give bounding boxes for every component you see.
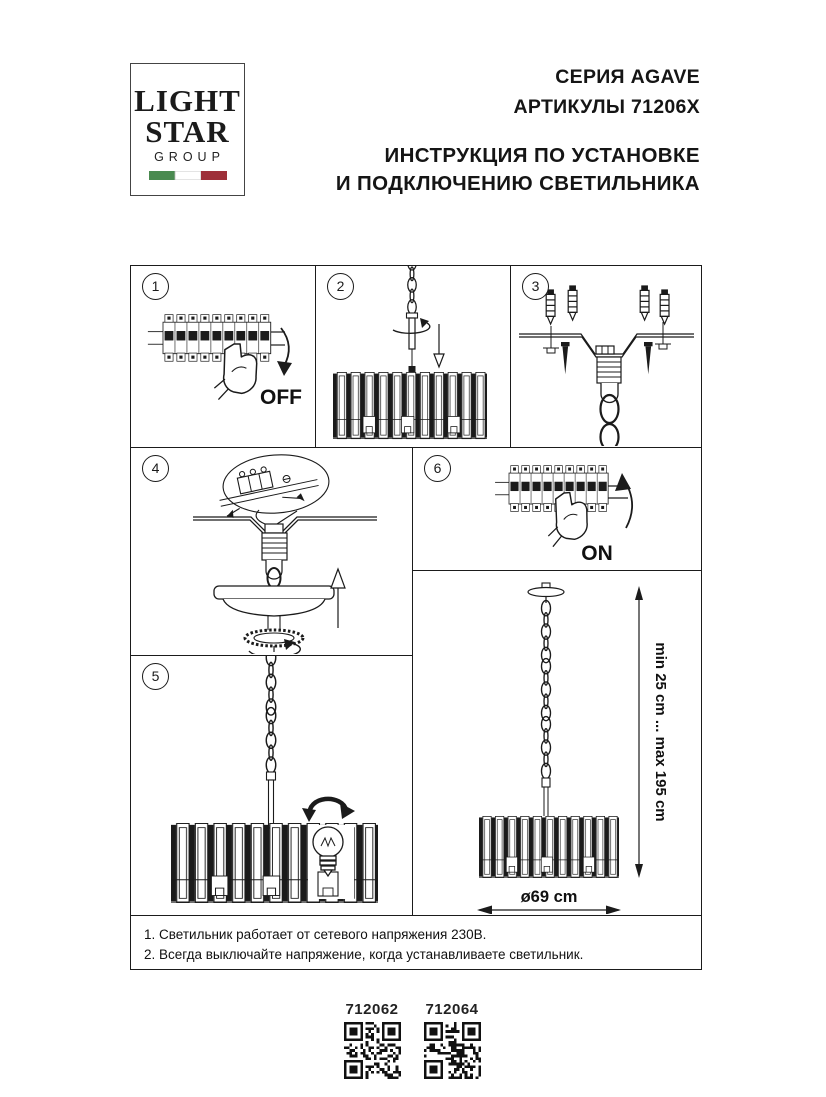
step-panel-3: 3 <box>511 266 701 448</box>
qr-code-712064 <box>424 1022 481 1079</box>
step-panel-2: 2 <box>316 266 511 448</box>
chain-icon <box>266 656 276 715</box>
chain-icon <box>542 659 551 721</box>
instruction-sheet: LIGHT STAR GROUP СЕРИЯ AGAVE АРТИКУЛЫ 71… <box>0 0 826 1097</box>
crystal-shade-icon <box>479 816 619 878</box>
article-code-712064: 712064 <box>423 1001 481 1018</box>
screw-icon <box>644 342 653 374</box>
page-title: ИНСТРУКЦИЯ ПО УСТАНОВКЕ И ПОДКЛЮЧЕНИЮ СВ… <box>336 142 700 198</box>
wall-anchor-icon <box>640 286 649 320</box>
instruction-grid: 1 OFF 2 <box>130 265 702 970</box>
chain-link-icon <box>601 424 619 446</box>
step-number-badge: 1 <box>142 273 169 300</box>
step-panel-4: 4 <box>131 448 413 656</box>
step-number-badge: 6 <box>424 455 451 482</box>
series-name: СЕРИЯ AGAVE <box>514 62 700 92</box>
article-numbers: АРТИКУЛЫ 71206X <box>514 92 700 122</box>
hang-and-bulb-drawing <box>131 656 411 914</box>
step-number-badge: 3 <box>522 273 549 300</box>
off-label: OFF <box>260 386 302 409</box>
chain-icon <box>266 708 276 774</box>
screw-bulb-rotation-arrow-icon <box>302 799 355 822</box>
threaded-coupler-icon <box>597 357 621 383</box>
chain-icon <box>542 717 551 779</box>
crystal-shade-icon <box>333 372 487 439</box>
callout-balloon <box>221 451 331 516</box>
logo-word-group: GROUP <box>131 150 244 164</box>
wall-anchor-icon <box>660 290 669 324</box>
notes-panel: 1. Светильник работает от сетевого напря… <box>131 916 701 969</box>
dimensions-panel: min 25 cm ... max 195 cm ø69 cm <box>413 571 701 916</box>
wall-anchor-icon <box>546 290 555 324</box>
step-number-badge: 5 <box>142 663 169 690</box>
threaded-coupler-icon <box>262 533 287 560</box>
screw-icon <box>561 342 570 374</box>
lightstar-logo: LIGHT STAR GROUP <box>130 63 245 196</box>
logo-word-light: LIGHT <box>131 85 244 116</box>
qr-code-712062 <box>344 1022 401 1079</box>
diameter-label: ø69 cm <box>521 888 578 906</box>
italian-flag-stripe-icon <box>149 171 227 180</box>
rotate-down-arrow-icon <box>281 328 289 366</box>
ceiling-canopy-icon <box>528 588 564 597</box>
step-panel-5: 5 <box>131 656 413 916</box>
ceiling-canopy-icon <box>214 586 334 599</box>
step-panel-1: 1 OFF <box>131 266 316 448</box>
chain-icon <box>542 601 551 663</box>
logo-word-star: STAR <box>131 116 244 147</box>
breaker-on-drawing: ON <box>413 448 699 569</box>
fixture-dimensions-drawing: min 25 cm ... max 195 cm ø69 cm <box>413 571 699 914</box>
series-header: СЕРИЯ AGAVE АРТИКУЛЫ 71206X <box>514 62 700 122</box>
wiring-and-canopy-drawing <box>131 448 411 654</box>
step-panel-6: 6 ON <box>413 448 701 571</box>
note-line-1: 1. Светильник работает от сетевого напря… <box>144 925 688 945</box>
article-code-712062: 712062 <box>343 1001 401 1018</box>
chain-icon <box>408 266 417 314</box>
note-line-2: 2. Всегда выключайте напряжение, когда у… <box>144 945 688 965</box>
on-label: ON <box>581 542 613 565</box>
suspension-range-label: min 25 cm ... max 195 cm <box>652 642 669 821</box>
wall-anchor-icon <box>568 286 577 320</box>
step-number-badge: 4 <box>142 455 169 482</box>
step-number-badge: 2 <box>327 273 354 300</box>
